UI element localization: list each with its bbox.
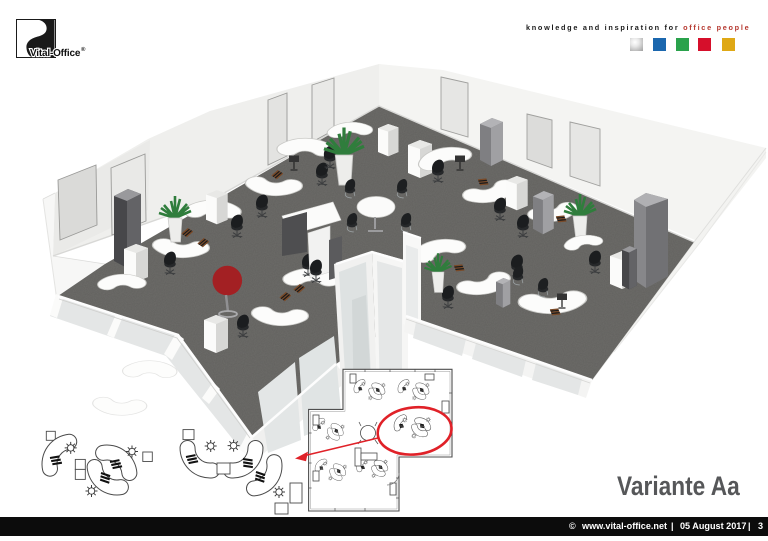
svg-text:®: ® [81,46,86,53]
svg-text:Vital-Office: Vital-Office [30,48,81,59]
